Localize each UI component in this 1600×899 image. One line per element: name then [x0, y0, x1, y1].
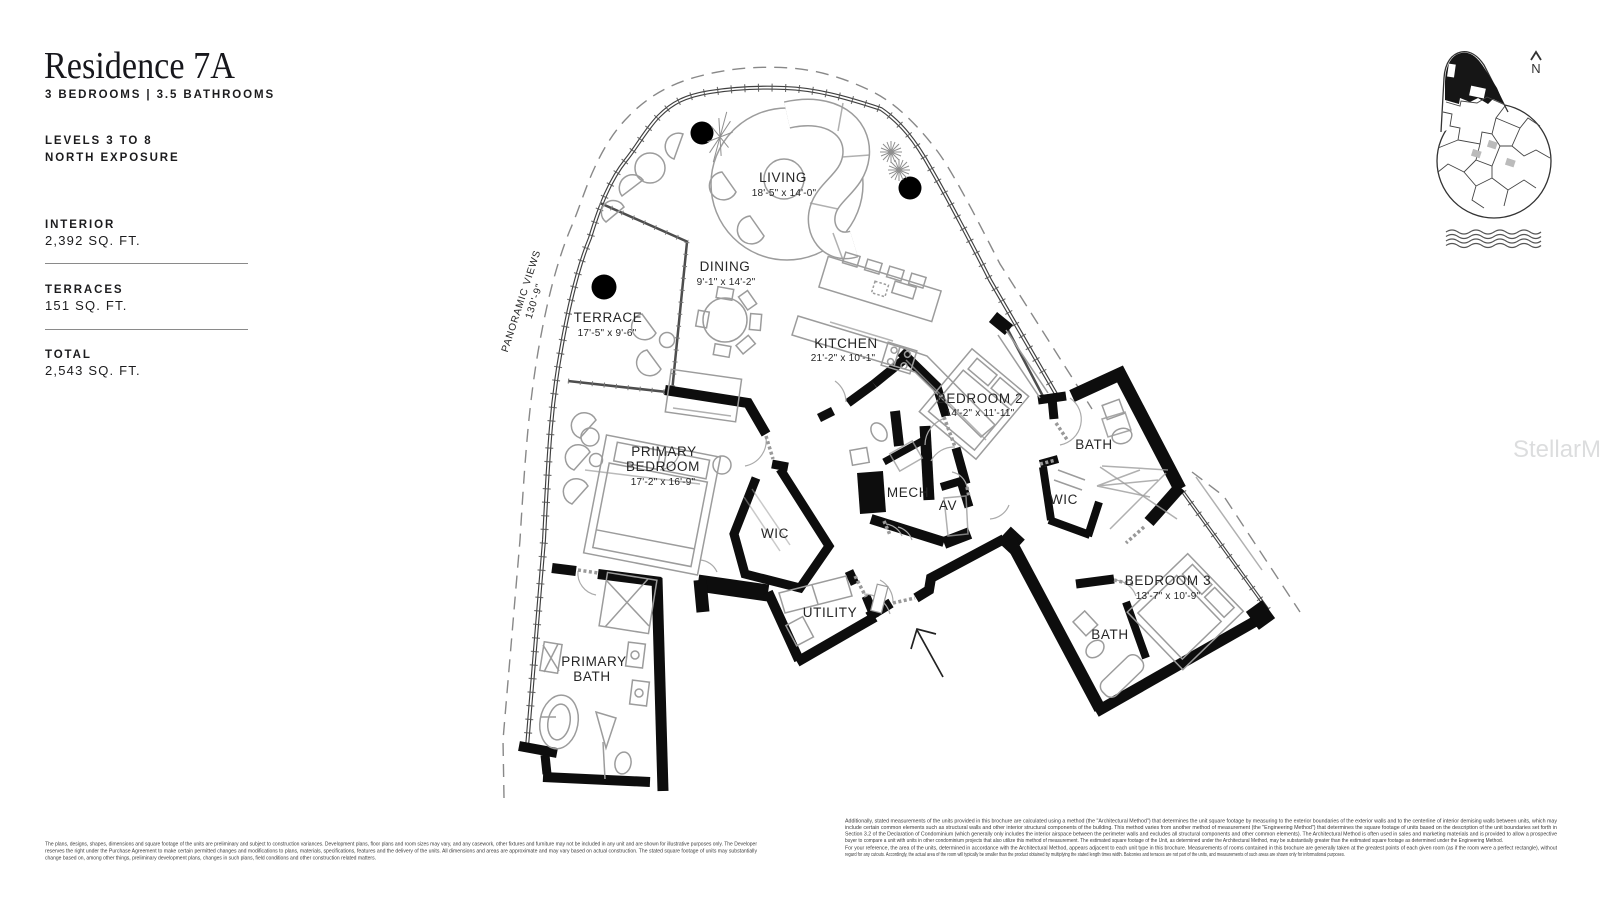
svg-text:13'-7" x 10'-9": 13'-7" x 10'-9" — [1136, 591, 1201, 602]
svg-text:BATH: BATH — [1091, 627, 1128, 642]
svg-text:DINING: DINING — [700, 259, 751, 274]
svg-text:TERRACE: TERRACE — [574, 310, 643, 325]
svg-text:WIC: WIC — [1050, 492, 1078, 507]
svg-text:MECH: MECH — [887, 485, 929, 500]
svg-text:14'-2" x 11'-11": 14'-2" x 11'-11" — [946, 408, 1015, 419]
svg-text:UTILITY: UTILITY — [803, 605, 857, 620]
svg-text:17'-2" x 16'-9": 17'-2" x 16'-9" — [631, 477, 696, 488]
svg-text:N: N — [1531, 61, 1540, 76]
svg-text:21'-2" x 10'-1": 21'-2" x 10'-1" — [811, 353, 876, 364]
svg-text:BATH: BATH — [1075, 437, 1112, 452]
svg-text:BEDROOM 2: BEDROOM 2 — [937, 391, 1023, 406]
svg-text:18'-5" x 14'-0": 18'-5" x 14'-0" — [752, 188, 817, 199]
svg-text:BEDROOM: BEDROOM — [626, 459, 700, 474]
svg-text:WIC: WIC — [761, 526, 789, 541]
svg-text:17'-5" x 9'-6": 17'-5" x 9'-6" — [578, 328, 637, 339]
svg-text:9'-1" x 14'-2": 9'-1" x 14'-2" — [697, 277, 756, 288]
svg-text:AV: AV — [939, 498, 957, 513]
svg-text:BEDROOM 3: BEDROOM 3 — [1125, 573, 1211, 588]
svg-text:PRIMARY: PRIMARY — [631, 444, 696, 459]
svg-text:BATH: BATH — [573, 669, 610, 684]
svg-text:PRIMARY: PRIMARY — [561, 654, 626, 669]
svg-text:KITCHEN: KITCHEN — [814, 336, 877, 351]
svg-text:LIVING: LIVING — [759, 170, 807, 185]
